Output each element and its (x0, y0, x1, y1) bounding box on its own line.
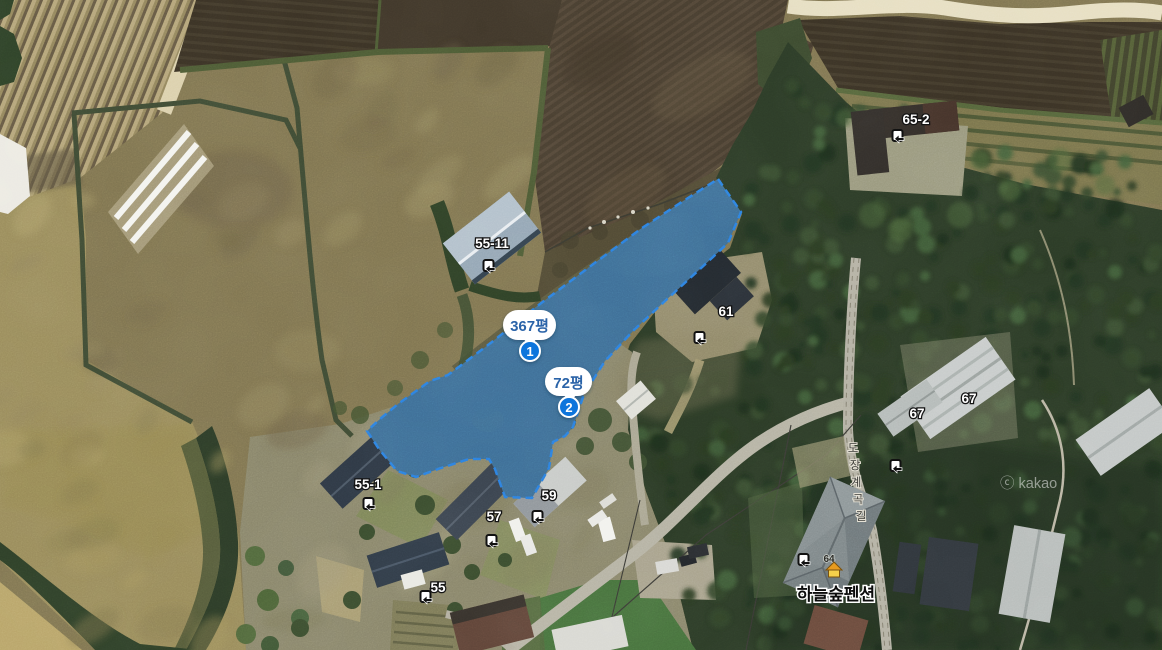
svg-text:55: 55 (430, 580, 446, 595)
svg-text:57: 57 (486, 509, 501, 524)
svg-text:2: 2 (565, 400, 572, 415)
svg-text:55-11: 55-11 (475, 236, 509, 251)
svg-text:길: 길 (856, 510, 867, 523)
svg-text:계: 계 (851, 476, 862, 489)
svg-text:도: 도 (848, 443, 859, 455)
svg-text:61: 61 (718, 304, 734, 319)
svg-text:72평: 72평 (553, 374, 584, 392)
svg-text:59: 59 (541, 488, 556, 503)
svg-text:67: 67 (909, 406, 924, 421)
svg-text:ⓒ kakao: ⓒ kakao (1000, 475, 1057, 492)
svg-text:65-2: 65-2 (902, 112, 929, 127)
svg-text:1: 1 (526, 344, 533, 359)
svg-text:곡: 곡 (853, 494, 864, 506)
svg-text:67: 67 (961, 391, 976, 406)
svg-text:55-1: 55-1 (354, 477, 382, 492)
svg-text:하늘숲펜션: 하늘숲펜션 (797, 585, 875, 604)
svg-text:장: 장 (850, 459, 861, 472)
svg-text:367평: 367평 (510, 317, 549, 335)
